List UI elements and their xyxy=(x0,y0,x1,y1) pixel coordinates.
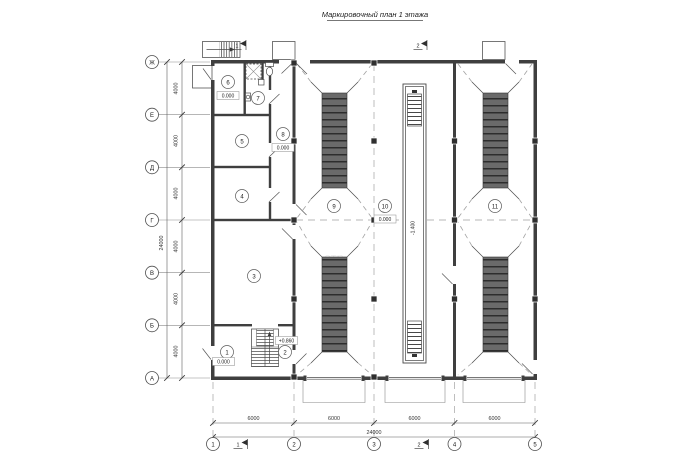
room-number-11: 11 xyxy=(492,204,499,210)
axis-row-a: А xyxy=(150,376,154,382)
floor-plan-drawing: Маркировочный план 1 этажа стр xyxy=(0,0,700,474)
dim-row-2: 4000 xyxy=(174,188,180,200)
north-platform-1 xyxy=(273,42,296,60)
dim-col-1: 6000 xyxy=(328,416,340,422)
section-flag-top-2: 2 xyxy=(414,40,428,50)
page-title: Маркировочный план 1 этажа xyxy=(322,10,428,19)
inspection-pit: -1.400 xyxy=(403,84,426,363)
axis-row-zh: Ж xyxy=(149,60,155,66)
pit-ladder-bottom xyxy=(408,321,422,353)
dim-row-4: 4000 xyxy=(174,293,180,305)
axis-row-v: В xyxy=(150,271,154,277)
exterior-structures xyxy=(193,42,526,403)
interior-stair xyxy=(252,329,279,367)
dim-col-2: 6000 xyxy=(409,416,421,422)
drawing-title: Маркировочный план 1 этажа xyxy=(322,10,428,21)
axis-row-d: Д xyxy=(150,166,154,172)
dim-row-3: 4000 xyxy=(174,241,180,253)
svg-text:1: 1 xyxy=(237,443,240,449)
loading-ramp-3 xyxy=(463,380,525,403)
room-10-elevation: 0.000 xyxy=(379,217,392,223)
svg-text:2: 2 xyxy=(418,443,421,449)
toilet-icon xyxy=(266,67,272,75)
loading-ramp-1 xyxy=(303,380,365,403)
dim-row-total: 24000 xyxy=(159,236,165,251)
room-8-elevation: 0.000 xyxy=(277,146,290,152)
north-platform-2 xyxy=(483,42,506,60)
section-flag-bottom-2: 2 xyxy=(415,439,429,449)
svg-text:2: 2 xyxy=(417,44,420,50)
toilet-tank xyxy=(266,63,274,67)
room-number-10: 10 xyxy=(382,204,389,210)
axis-row-b: Б xyxy=(150,324,154,330)
svg-text:1: 1 xyxy=(236,44,239,50)
room-1-elevation: 0.000 xyxy=(217,360,230,366)
room-6-elevation: 0.000 xyxy=(222,94,235,100)
pit-depth-label: -1.400 xyxy=(411,221,417,235)
dim-col-total: 24000 xyxy=(367,430,382,436)
small-fixture xyxy=(259,80,265,86)
loading-ramp-2 xyxy=(385,380,445,403)
stair-landing-elevation: +0.860 xyxy=(279,339,295,345)
pit-ladder-top xyxy=(408,94,422,126)
section-flag-bottom-1: 1 xyxy=(234,439,248,449)
dim-row-5: 4000 xyxy=(174,346,180,358)
dim-col-0: 6000 xyxy=(248,416,260,422)
axis-row-e: Е xyxy=(150,113,154,119)
floor-plan-svg: Маркировочный план 1 этажа стр xyxy=(0,0,700,474)
dim-row-0: 4000 xyxy=(174,83,180,95)
dim-col-3: 6000 xyxy=(489,416,501,422)
dim-row-1: 4000 xyxy=(174,135,180,147)
